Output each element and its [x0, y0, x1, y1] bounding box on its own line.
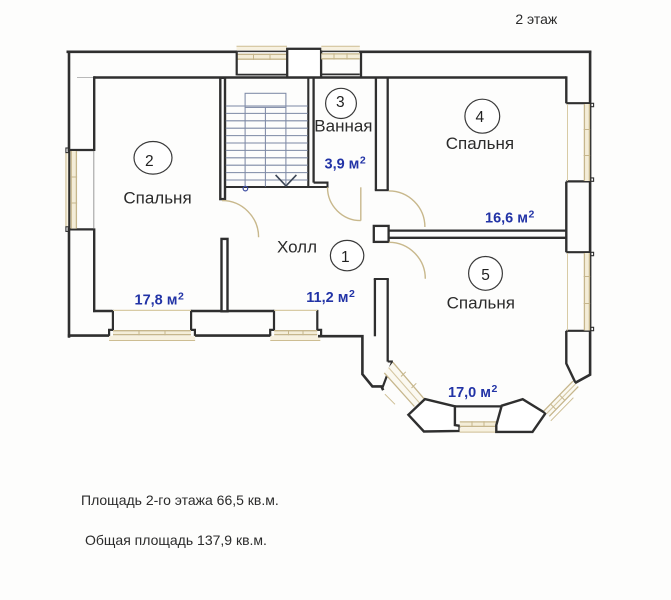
svg-text:17,8 м2: 17,8 м2 [135, 291, 184, 309]
svg-text:Спальня: Спальня [123, 189, 191, 208]
svg-text:Ванная: Ванная [314, 116, 372, 135]
svg-text:16,6 м2: 16,6 м2 [485, 209, 534, 227]
svg-text:1: 1 [341, 249, 350, 266]
svg-text:3: 3 [336, 94, 345, 111]
svg-text:Холл: Холл [277, 238, 317, 257]
svg-text:Общая площадь 137,9 кв.м.: Общая площадь 137,9 кв.м. [85, 532, 267, 548]
svg-text:Спальня: Спальня [447, 293, 515, 312]
svg-text:2 этаж: 2 этаж [515, 11, 558, 27]
svg-text:11,2 м2: 11,2 м2 [306, 288, 355, 306]
svg-text:5: 5 [481, 267, 490, 284]
svg-text:Спальня: Спальня [446, 134, 514, 153]
svg-text:17,0 м2: 17,0 м2 [448, 383, 497, 401]
svg-text:4: 4 [475, 109, 484, 126]
svg-text:2: 2 [145, 153, 154, 170]
svg-text:Площадь 2-го этажа 66,5 кв.м.: Площадь 2-го этажа 66,5 кв.м. [81, 492, 279, 508]
